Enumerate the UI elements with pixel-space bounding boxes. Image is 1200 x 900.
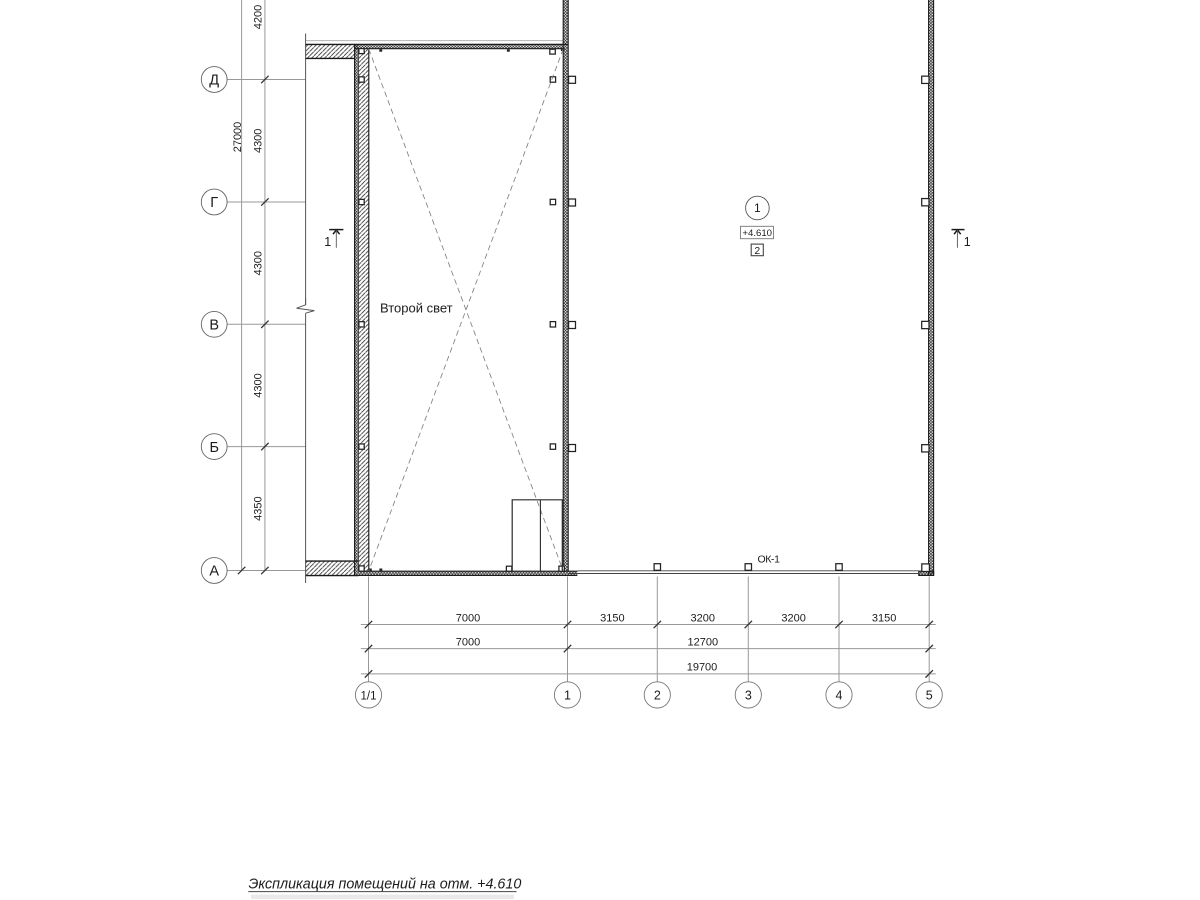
svg-text:3150: 3150 xyxy=(600,612,624,624)
svg-text:Г: Г xyxy=(210,195,218,211)
svg-text:ОК-1: ОК-1 xyxy=(758,553,781,565)
svg-text:3200: 3200 xyxy=(691,612,715,624)
svg-text:4300: 4300 xyxy=(252,373,264,397)
svg-text:4300: 4300 xyxy=(252,129,264,153)
svg-text:2: 2 xyxy=(654,688,661,702)
svg-text:4: 4 xyxy=(836,688,843,702)
svg-text:4200: 4200 xyxy=(253,5,265,29)
svg-text:1: 1 xyxy=(754,201,761,215)
svg-text:12700: 12700 xyxy=(688,636,719,648)
svg-text:27000: 27000 xyxy=(232,122,244,153)
svg-text:1: 1 xyxy=(964,235,971,249)
svg-text:4350: 4350 xyxy=(252,496,264,520)
svg-text:+4.610: +4.610 xyxy=(742,228,772,239)
svg-text:А: А xyxy=(209,564,219,580)
svg-text:3: 3 xyxy=(745,688,752,702)
svg-text:Второй свет: Второй свет xyxy=(380,301,453,316)
svg-text:В: В xyxy=(209,318,219,334)
svg-text:2: 2 xyxy=(754,246,760,257)
svg-text:4300: 4300 xyxy=(252,251,264,275)
svg-text:5: 5 xyxy=(926,688,933,702)
svg-text:1: 1 xyxy=(564,688,571,702)
svg-text:3150: 3150 xyxy=(872,612,896,624)
svg-text:Экспликация помещений на отм.: Экспликация помещений на отм. +4.610 xyxy=(249,877,522,893)
svg-text:1: 1 xyxy=(324,235,331,249)
svg-text:7000: 7000 xyxy=(456,612,480,624)
svg-text:7000: 7000 xyxy=(456,636,480,648)
svg-text:1/1: 1/1 xyxy=(361,690,377,702)
svg-text:Б: Б xyxy=(209,440,219,456)
svg-text:19700: 19700 xyxy=(687,662,718,674)
svg-text:Д: Д xyxy=(209,73,219,89)
svg-text:3200: 3200 xyxy=(781,612,805,624)
